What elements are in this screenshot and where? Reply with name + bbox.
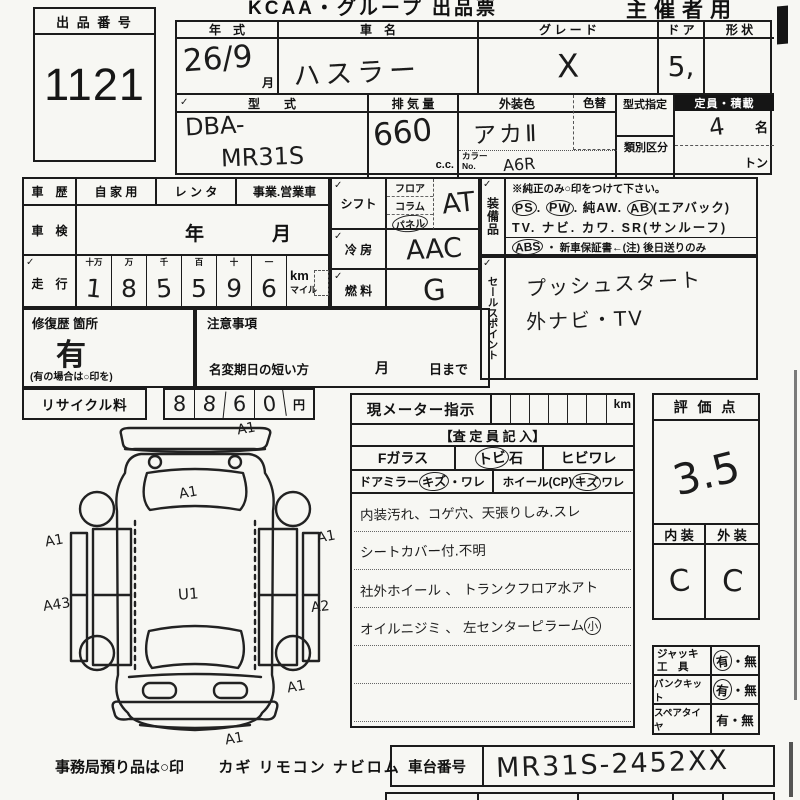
assessor-box: 現メーター指示 km 【査 定 員 記 入】 Fガラス トビ石 ヒビワレ ドアミ… xyxy=(350,393,635,728)
grade-value: X xyxy=(556,47,579,86)
capacity-unit: 名 xyxy=(755,117,768,136)
exterior-value: C xyxy=(720,563,743,599)
car-name-header: 車 名 xyxy=(279,22,479,39)
assessor-note-line: オイルニジミ 、 左センターピラーム小 xyxy=(354,608,631,646)
repair-note: (有の場合は○印を) xyxy=(30,368,113,383)
capacity-value: 4 xyxy=(707,112,726,142)
shape-cell xyxy=(705,39,774,95)
equipment-line1: PS. PW. 純AW. AB(エアバック) xyxy=(506,196,756,216)
month-suffix: 月 xyxy=(262,74,274,91)
equipment-line3: ABS ・ 新車保証書←(注) 後日送りのみ xyxy=(506,237,756,255)
recycle-digit: 6 xyxy=(225,390,255,418)
partial-divider xyxy=(477,794,479,800)
damage-mark: A1 xyxy=(316,528,337,547)
assessor-note-line-empty xyxy=(354,684,631,722)
capacity-divider xyxy=(675,145,774,146)
car-name-value: ハスラー xyxy=(292,48,422,94)
check-mark: ✓ xyxy=(180,97,188,108)
mirror-wheel-row: ドアミラー キズ・ワレ ホイール(CP) キズ ワレ xyxy=(352,471,633,494)
note-text: オイルニジミ 、 左センターピラーム小 xyxy=(360,614,602,639)
exterior-color-value: アカⅡ xyxy=(472,114,539,150)
fuel-value-cell: G xyxy=(387,270,482,310)
class-division-label: 類別区分 xyxy=(617,139,675,155)
fuel-label-cell: ✓ 燃 料 xyxy=(332,270,387,310)
stone-chip-circled: トビ xyxy=(474,446,510,471)
capacity-header: 定員・積載 xyxy=(675,95,774,111)
shape-header: 形 状 xyxy=(705,22,774,39)
mileage-unit-cell: km マイル xyxy=(287,256,332,310)
inspection-year: 年 xyxy=(185,219,204,246)
scan-artifact-top-right xyxy=(777,6,788,45)
glass-row: Fガラス トビ石 ヒビワレ xyxy=(352,447,633,471)
wheel-text: ホイール(CP) xyxy=(503,474,573,490)
damage-mark: A1 xyxy=(236,420,257,439)
assessor-note-line: 内装汚れ、コゲ穴、天張りしみ.スレ xyxy=(354,494,631,532)
color-no-row: カラー No. A6R xyxy=(459,150,617,177)
interior-exterior-header: 内 装 外 装 xyxy=(654,523,758,545)
equipment-box: ✓ 装備品 ※純正のみ○印をつけて下さい。 PS. PW. 純AW. AB(エア… xyxy=(480,177,758,256)
equipment-label: 装備品 xyxy=(482,179,506,254)
meter-row: 現メーター指示 km xyxy=(352,395,633,425)
ac-value-cell: AAC xyxy=(387,230,482,270)
partial-divider xyxy=(672,794,674,800)
puncture-kit-value: 有・無 xyxy=(712,676,758,703)
digit-value: 9 xyxy=(216,267,253,309)
recycle-label: リサイクル料 xyxy=(22,388,147,420)
chassis-value: MR31S-2452XX xyxy=(496,745,730,784)
digit-value: 8 xyxy=(112,268,146,308)
interior-label: 内 装 xyxy=(654,525,706,543)
mileage-digit-cell: 万 8 xyxy=(112,256,147,310)
shift-option-panel: パネル xyxy=(387,215,433,231)
model-cell: ✓ 型 式 DBA- MR31S xyxy=(177,95,369,177)
mirror-text: ドアミラー xyxy=(359,473,419,490)
yes-no-sep: ・ xyxy=(732,651,745,670)
shift-options: フロア コラム パネル xyxy=(387,179,434,230)
wheel-label: ホイール(CP) キズ ワレ xyxy=(494,471,633,492)
model-prefix: DBA- xyxy=(184,110,245,141)
jack-label: ジャッキ 工 具 xyxy=(654,647,712,674)
recycle-unit: 円 xyxy=(285,390,313,418)
displacement-header: 排 気 量 xyxy=(369,95,457,113)
office-note: 事務局預り品は○印 xyxy=(55,759,184,776)
equip-sep: . xyxy=(574,201,583,215)
exterior-label: 外 装 xyxy=(706,525,758,543)
jack-yes-circled: 有 xyxy=(712,649,733,672)
stone-chip-rest: 石 xyxy=(509,448,523,468)
mileage-digit-cell: 十万 1 xyxy=(77,256,112,310)
score-header: 評 価 点 xyxy=(654,395,758,421)
assessor-note-line-empty xyxy=(354,646,631,684)
note-circled-small: 小 xyxy=(584,617,601,635)
meter-unit: km xyxy=(614,397,631,411)
digit-value: 5 xyxy=(182,268,216,308)
yes-no-sep: ・ xyxy=(732,680,745,699)
recycle-digit: 8 xyxy=(165,390,195,418)
repair-label: 修復歴 箇所 xyxy=(24,310,193,332)
interior-value-cell: C xyxy=(654,545,706,618)
unit-mile: マイル xyxy=(290,283,317,296)
history-label: 車 歴 xyxy=(24,179,77,206)
spare-tire-row: スペアタイヤ 有・無 xyxy=(654,705,758,733)
ac-value: AAC xyxy=(406,232,464,266)
grade-header: グ レ ー ド xyxy=(479,22,659,39)
check-mark: ✓ xyxy=(334,180,342,191)
meter-digit-box xyxy=(587,395,607,423)
yes-no-sep: ・ xyxy=(729,710,742,729)
chassis-box: 車台番号 MR31S-2452XX xyxy=(390,745,775,787)
car-diagram: A1 A1 A1 A1 A43 A2 U1 A1 A1 xyxy=(45,425,345,745)
grade-cell: X xyxy=(479,39,659,95)
year-header: 年 式 xyxy=(177,22,279,39)
caution-box: 注意事項 名変期日の短い方 月 日まで xyxy=(195,308,490,388)
note-text-main: オイルニジミ 、 左センターピラーム xyxy=(360,618,584,638)
note-text: 社外ホイール 、 トランクフロア水アト xyxy=(360,576,598,600)
equip-ab: AB xyxy=(626,199,653,217)
vehicle-table: 年 式 車 名 グ レ ー ド ド ア 形 状 26/9 月 ハスラー X 5,… xyxy=(175,20,772,175)
history-option-private: 自 家 用 xyxy=(77,179,157,206)
name-change-month: 月 xyxy=(375,358,389,378)
scan-artifact-bottom-right xyxy=(789,742,793,797)
digit-header: 万 xyxy=(112,256,146,268)
score-value-cell: 3.5 xyxy=(654,421,758,525)
interior-value: C xyxy=(667,563,691,600)
inspection-label: 車 検 xyxy=(24,206,77,256)
footer-note: 事務局預り品は○印 カギ リモコン ナビロム xyxy=(55,756,401,777)
note-text: 内装汚れ、コゲ穴、天張りしみ.スレ xyxy=(360,500,581,524)
check-mark: ✓ xyxy=(334,231,342,242)
recycle-digits: 8 8 6 0 円 xyxy=(163,388,315,420)
mileage-digit-cell: 千 5 xyxy=(147,256,182,310)
mileage-digit-cell: 一 6 xyxy=(252,256,287,310)
digit-header: 一 xyxy=(252,256,286,268)
door-header: ド ア xyxy=(659,22,705,39)
front-glass-label: Fガラス xyxy=(352,447,456,469)
ac-label-cell: ✓ 冷 房 xyxy=(332,230,387,270)
lot-box: 出 品 番 号 1121 xyxy=(33,7,156,162)
equip-pw: PW xyxy=(545,199,574,216)
exterior-value-cell: C xyxy=(706,545,758,618)
recycle-digit: 0 xyxy=(253,388,287,420)
damage-mark: A1 xyxy=(286,678,307,697)
scan-artifact-right-edge xyxy=(794,370,797,700)
equip-ps: PS xyxy=(511,199,537,217)
shift-option-floor: フロア xyxy=(387,179,433,197)
color-no-label-2: No. xyxy=(462,161,476,171)
door-cell: 5, xyxy=(659,39,705,95)
inspection-month: 月 xyxy=(272,219,291,246)
check-mark: ✓ xyxy=(26,257,34,268)
spare-no: 無 xyxy=(741,710,754,729)
car-name-cell: ハスラー xyxy=(279,39,479,95)
door-value: 5, xyxy=(668,50,695,83)
mileage-digit-cell: 十 9 xyxy=(217,256,252,310)
equip-sep: . xyxy=(537,201,546,215)
caution-label: 注意事項 xyxy=(197,310,488,332)
mirror-kizu-circled: キズ xyxy=(418,471,449,492)
lot-label: 出 品 番 号 xyxy=(35,9,154,35)
equipment-note: ※純正のみ○印をつけて下さい。 xyxy=(506,179,756,196)
exterior-color-header: 外装色 xyxy=(459,95,575,113)
mileage-digit-cell: 百 5 xyxy=(182,256,217,310)
controls-table: ✓ シフト フロア コラム パネル AT ✓ 冷 房 AAC ✓ 燃 料 G xyxy=(330,177,480,308)
fuel-value: G xyxy=(422,272,447,307)
spare-tire-label: スペアタイヤ xyxy=(654,705,712,733)
roof-mark: U1 xyxy=(177,584,199,603)
year-cell: 26/9 月 xyxy=(177,39,279,95)
name-change-until: 日まで xyxy=(429,359,468,378)
inspection-cell: 年 月 xyxy=(77,206,332,256)
assessor-note-line: シートカバー付.不明 xyxy=(354,532,631,570)
color-change-box: 色替 xyxy=(573,95,615,150)
damage-mark: A1 xyxy=(178,484,199,503)
meter-digit-box xyxy=(530,395,549,423)
score-value: 3.5 xyxy=(668,441,745,505)
shift-option-column: コラム xyxy=(387,197,433,215)
deposit-items: カギ リモコン ナビロム xyxy=(218,759,400,776)
jack-label-2: 工 具 xyxy=(657,661,689,673)
repair-box: 修復歴 箇所 有 (有の場合は○印を) xyxy=(22,308,195,388)
puncture-kit-label: パンクキット xyxy=(654,676,712,703)
meter-digit-box xyxy=(568,395,587,423)
mirror-ware: ・ワレ xyxy=(449,473,485,490)
history-option-rental: レ ン タ xyxy=(157,179,237,206)
meter-digit-box xyxy=(492,395,511,423)
damage-mark: A1 xyxy=(44,532,65,551)
digit-value: 6 xyxy=(252,268,286,308)
accessories-table: ジャッキ 工 具 有・無 パンクキット 有・無 スペアタイヤ 有・無 xyxy=(652,645,760,735)
spare-yes: 有 xyxy=(716,710,729,729)
equip-abs: ABS xyxy=(511,238,543,256)
puncture-no: 無 xyxy=(744,680,757,699)
recycle-digit: 8 xyxy=(194,389,227,420)
recycle-row: リサイクル料 8 8 6 0 円 xyxy=(22,388,322,420)
digit-header: 百 xyxy=(182,256,216,268)
displacement-unit: c.c. xyxy=(436,159,454,171)
stone-chip-label: トビ石 xyxy=(456,447,544,469)
chassis-label: 車台番号 xyxy=(392,747,484,785)
model-code: MR31S xyxy=(221,142,305,173)
jack-no: 無 xyxy=(744,651,757,670)
puncture-kit-row: パンクキット 有・無 xyxy=(654,676,758,705)
meter-digit-box xyxy=(549,395,568,423)
wheel-ware: ワレ xyxy=(601,474,624,490)
type-designation-cell: 型式指定 類別区分 xyxy=(617,95,675,177)
door-mirror-label: ドアミラー キズ・ワレ xyxy=(352,471,494,492)
jack-value: 有・無 xyxy=(712,647,758,674)
shift-label-cell: ✓ シフト xyxy=(332,179,387,230)
sales-point-line: プッシュスタート xyxy=(525,263,702,301)
damage-mark: A1 xyxy=(224,730,245,749)
shift-value-cell: AT xyxy=(434,179,482,230)
equipment-line2: TV. ナビ. カワ. SR(サンルーフ) xyxy=(506,216,756,236)
assessor-note-line: 社外ホイール 、 トランクフロア水アト xyxy=(354,570,631,608)
partial-divider xyxy=(577,794,579,800)
type-designation-label: 型式指定 xyxy=(617,95,673,111)
note-text: シートカバー付.不明 xyxy=(360,539,486,561)
partial-table-bottom xyxy=(385,792,775,800)
jack-label-1: ジャッキ xyxy=(657,648,698,660)
color-no-label: カラー No. xyxy=(462,152,488,172)
model-header: 型 式 xyxy=(177,95,367,113)
mile-checkbox xyxy=(314,270,329,296)
auction-sheet: KCAA・グループ 出品票 主催者用 出 品 番 号 1121 年 式 車 名 … xyxy=(0,0,800,800)
history-table: 車 歴 自 家 用 レ ン タ 事業.営業車 車 検 年 月 ✓ 走 行 十万 … xyxy=(22,177,330,308)
capacity-cell: 定員・積載 4 名 トン xyxy=(675,95,774,177)
partial-divider xyxy=(722,794,724,800)
assessor-header: 【査 定 員 記 入】 xyxy=(352,425,633,447)
crack-label: ヒビワレ xyxy=(544,447,633,469)
lot-number: 1121 xyxy=(35,35,154,135)
mileage-label-cell: ✓ 走 行 xyxy=(24,256,77,310)
equip-aw: 純AW. xyxy=(583,201,627,215)
check-mark: ✓ xyxy=(334,271,342,282)
unit-km: km xyxy=(290,268,309,283)
equip-airbag: (エアバック) xyxy=(653,201,730,215)
digit-value: 1 xyxy=(75,266,113,309)
displacement-value: 660 xyxy=(371,112,434,154)
color-no-label-1: カラー xyxy=(462,151,488,161)
name-change-label: 名変期日の短い方 xyxy=(209,359,309,378)
shift-value: AT xyxy=(440,186,476,220)
equipment-content: ※純正のみ○印をつけて下さい。 PS. PW. 純AW. AB(エアバック) T… xyxy=(506,179,756,254)
equip-warranty-note: ・ 新車保証書←(注) 後日送りのみ xyxy=(546,242,706,254)
puncture-yes-circled: 有 xyxy=(712,678,733,701)
sales-point-line: 外ナビ・TV xyxy=(526,302,645,335)
sales-point-box: ✓ セールスポイント プッシュスタート 外ナビ・TV xyxy=(480,256,758,380)
exterior-color-cell: 外装色 色替 アカⅡ カラー No. A6R xyxy=(459,95,617,177)
jack-row: ジャッキ 工 具 有・無 xyxy=(654,647,758,676)
digit-value: 5 xyxy=(145,267,182,310)
meter-label: 現メーター指示 xyxy=(352,395,492,423)
score-box: 評 価 点 3.5 内 装 外 装 C C xyxy=(652,393,760,620)
displacement-cell: 排 気 量 660 c.c. xyxy=(369,95,459,177)
wheel-kizu-circled: キズ xyxy=(572,472,602,492)
damage-mark: A2 xyxy=(310,598,330,616)
type-designation-divider xyxy=(617,135,675,137)
history-option-business: 事業.営業車 xyxy=(237,179,332,206)
year-value: 26/9 xyxy=(182,39,254,80)
brand-title: KCAA・グループ 出品票 xyxy=(248,0,498,20)
spare-tire-value: 有・無 xyxy=(712,705,758,733)
meter-digit-box xyxy=(511,395,530,423)
color-change-label: 色替 xyxy=(574,95,615,113)
load-unit: トン xyxy=(744,154,768,171)
color-no-value: A6R xyxy=(502,154,535,175)
